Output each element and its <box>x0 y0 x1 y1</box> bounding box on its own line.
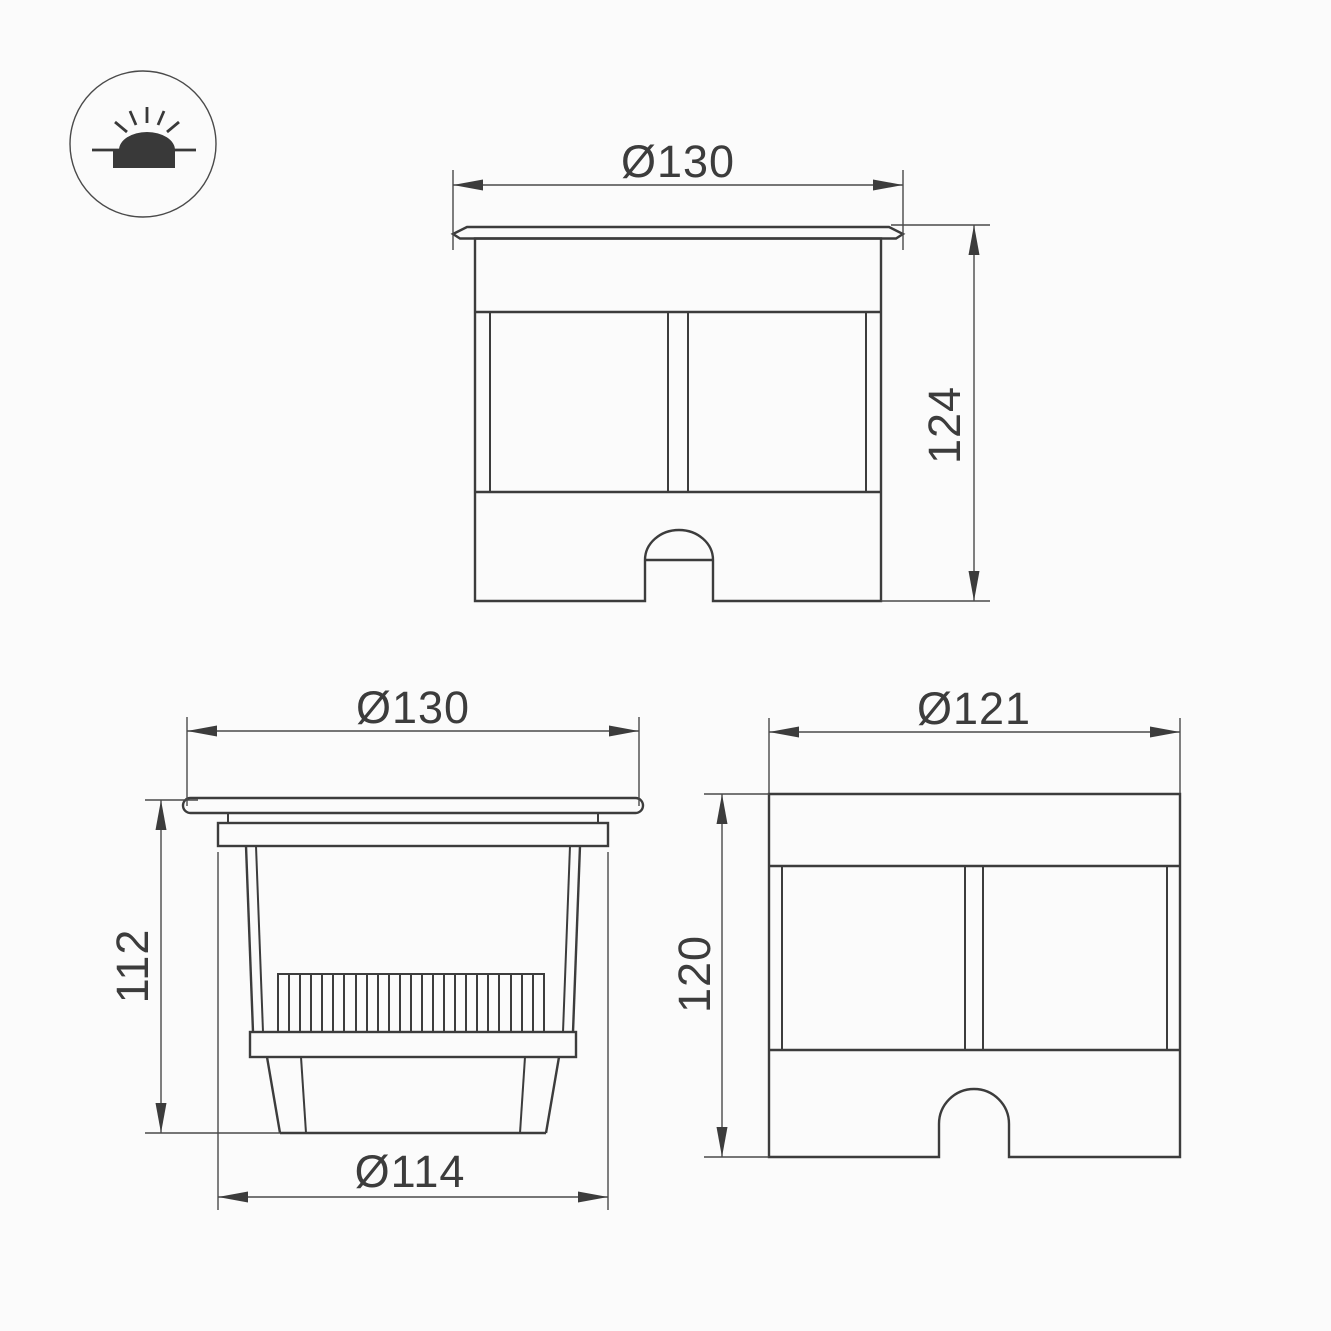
front-flange <box>453 227 903 239</box>
icon-light-rays <box>115 107 179 132</box>
body-view: Ø121 120 <box>669 683 1180 1157</box>
front-height-dimension: 124 <box>881 225 990 601</box>
body-height-dimension: 120 <box>669 794 769 1157</box>
body-width-dimension: Ø121 <box>769 683 1180 793</box>
icon-light-dome <box>119 132 175 150</box>
section-flange-step <box>228 813 598 823</box>
technical-drawing-sheet: Ø130 124 <box>0 0 1331 1331</box>
section-top-width-label: Ø130 <box>356 682 470 733</box>
front-width-label: Ø130 <box>621 136 735 187</box>
front-width-dimension: Ø130 <box>453 136 903 250</box>
section-body-inner-right <box>563 846 570 1032</box>
section-flange <box>183 798 643 813</box>
body-housing <box>769 794 1180 1157</box>
dimensional-drawing: Ø130 124 <box>0 0 1331 1331</box>
front-housing <box>475 239 881 602</box>
section-height-label: 112 <box>107 929 158 1004</box>
section-height-dimension: 112 <box>107 800 280 1133</box>
section-base-plate <box>250 1032 576 1057</box>
section-body-inner-left <box>256 846 263 1032</box>
section-top-width-dimension: Ø130 <box>187 682 639 806</box>
section-view: Ø130 112 Ø114 <box>107 682 643 1210</box>
front-height-label: 124 <box>919 386 970 464</box>
icon-recessed-body <box>113 149 175 168</box>
section-canister <box>267 1057 559 1133</box>
section-body-outer-right <box>573 846 580 1032</box>
front-view: Ø130 124 <box>453 136 990 601</box>
inground-light-icon <box>70 71 216 217</box>
section-bottom-width-label: Ø114 <box>355 1146 466 1197</box>
section-heatsink-fins <box>278 974 544 1032</box>
body-width-label: Ø121 <box>917 683 1031 734</box>
section-body-outer-left <box>246 846 253 1032</box>
section-collar <box>218 823 608 846</box>
body-height-label: 120 <box>669 935 720 1013</box>
